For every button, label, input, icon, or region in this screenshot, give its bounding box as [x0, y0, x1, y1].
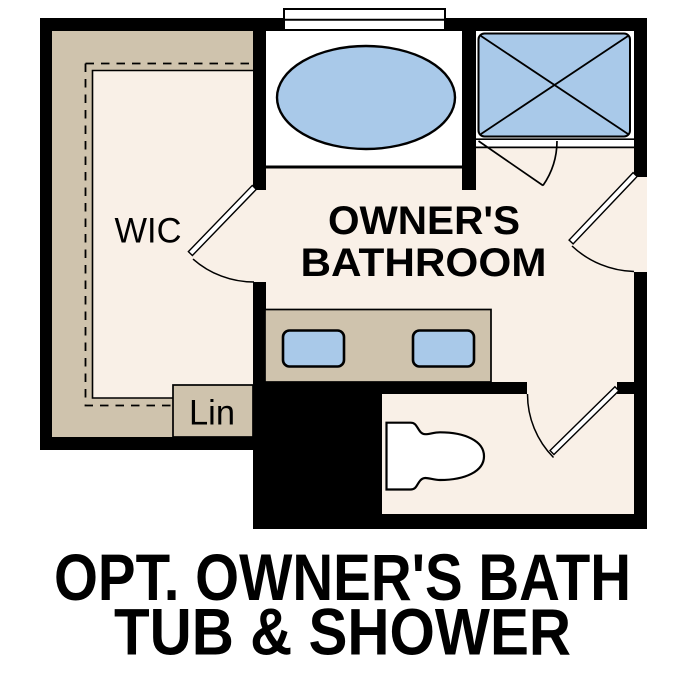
- svg-text:OWNER'S: OWNER'S: [328, 199, 520, 243]
- svg-text:BATHROOM: BATHROOM: [301, 241, 547, 285]
- svg-text:WIC: WIC: [115, 212, 182, 251]
- svg-text:Lin: Lin: [189, 394, 235, 433]
- svg-text:TUB & SHOWER: TUB & SHOWER: [114, 595, 571, 669]
